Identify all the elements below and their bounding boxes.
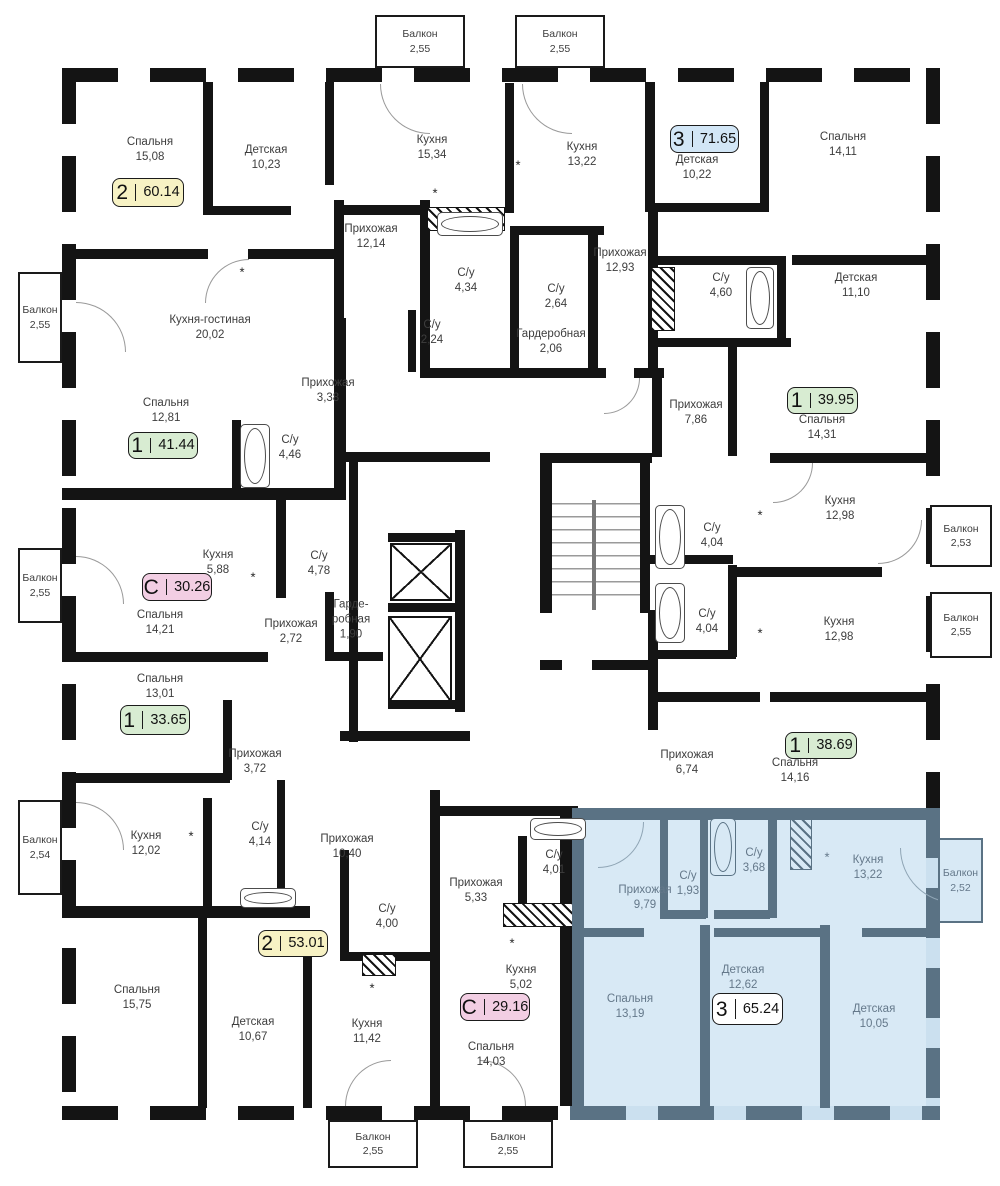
- room-label: Детская11,10: [835, 271, 878, 301]
- room-area: 10,67: [232, 1030, 275, 1045]
- room-area: 20,02: [169, 328, 250, 343]
- apartment-badge[interactable]: 260.14: [112, 178, 184, 207]
- apartment-type: 1: [131, 435, 143, 456]
- room-name: Спальня: [143, 396, 189, 411]
- wall: [777, 256, 786, 344]
- balcony-name: Балкон: [22, 303, 57, 317]
- wall: [648, 650, 736, 659]
- wall: [505, 83, 514, 213]
- room-label: Кухня15,34: [417, 133, 448, 163]
- wall: [203, 82, 213, 214]
- room-area: 5,33: [449, 891, 502, 906]
- room-label: Спальня14,21: [137, 608, 183, 638]
- highlighted-apartment-region[interactable]: [575, 810, 940, 1116]
- balcony: Балкон2,53: [930, 505, 992, 567]
- room-area: 12,98: [824, 630, 855, 645]
- balcony-name: Балкон: [355, 1130, 390, 1144]
- appliance-asterisk-icon: *: [239, 265, 244, 280]
- room-name: Спальня: [820, 130, 866, 145]
- apartment-badge[interactable]: С29.16: [460, 993, 530, 1021]
- room-label: Кухня5,02: [506, 963, 537, 993]
- wall: [340, 452, 490, 462]
- balcony: Балкон2,55: [18, 548, 62, 623]
- door-arc: [773, 463, 813, 503]
- wall: [344, 205, 424, 215]
- room-name: Прихожая: [593, 246, 646, 261]
- balcony: Балкон2,55: [18, 272, 62, 363]
- appliance-asterisk-icon: *: [515, 158, 520, 173]
- wall: [62, 1106, 575, 1120]
- room-area: 12,93: [593, 261, 646, 276]
- room-area: 4,60: [710, 286, 732, 301]
- room-name: С/у: [701, 521, 723, 536]
- badge-divider: [692, 131, 693, 147]
- room-label: Детская10,23: [245, 143, 288, 173]
- wall: [349, 462, 358, 742]
- wall: [540, 453, 652, 463]
- balcony-label: Балкон2,54: [22, 833, 57, 861]
- wall: [560, 808, 572, 1106]
- room-name: Спальня: [137, 608, 183, 623]
- room-name: Гардеробная: [516, 327, 586, 342]
- wall: [325, 82, 334, 185]
- apartment-area: 29.16: [492, 1000, 528, 1015]
- room-name: Кухня: [203, 548, 234, 563]
- room-name: С/у: [696, 607, 718, 622]
- wall-highlighted: [820, 925, 830, 1108]
- room-area: 14,11: [820, 145, 866, 160]
- balcony-area: 2,54: [22, 848, 57, 862]
- room-label: Кухня12,98: [824, 615, 855, 645]
- balcony-name: Балкон: [490, 1130, 525, 1144]
- door-arc: [522, 84, 572, 134]
- wall-highlighted: [700, 925, 710, 1108]
- wall: [408, 310, 416, 372]
- room-area: 4,78: [308, 564, 330, 579]
- apartment-badge[interactable]: 133.65: [120, 705, 190, 735]
- wall: [62, 68, 76, 1120]
- wall: [570, 1106, 940, 1120]
- apartment-type: 1: [123, 710, 135, 731]
- appliance-asterisk-icon: *: [250, 570, 255, 585]
- wall: [770, 453, 928, 463]
- room-name: Кухня: [131, 829, 162, 844]
- balcony-name: Балкон: [943, 611, 978, 625]
- room-label: Прихожая12,14: [344, 222, 397, 252]
- room-name: Кухня-гостиная: [169, 313, 250, 328]
- balcony-label: Балкон2,55: [22, 303, 57, 331]
- bathtub-icon: [437, 212, 503, 236]
- balcony: Балкон2,55: [328, 1120, 418, 1168]
- room-area: 5,02: [506, 978, 537, 993]
- room-area: 3,72: [228, 762, 281, 777]
- balcony-area: 2,55: [490, 1144, 525, 1158]
- appliance-asterisk-icon: *: [432, 186, 437, 201]
- room-area: 12,98: [825, 509, 856, 524]
- room-label: С/у4,78: [308, 549, 330, 579]
- room-name: Прихожая: [449, 876, 502, 891]
- staircase: [552, 503, 640, 607]
- room-area: 12,14: [344, 237, 397, 252]
- room-area: 13,01: [137, 687, 183, 702]
- room-name: С/у: [249, 820, 271, 835]
- room-area: 10,23: [245, 158, 288, 173]
- balcony-label: Балкон2,55: [943, 611, 978, 639]
- room-name: Прихожая: [669, 398, 722, 413]
- balcony-name: Балкон: [22, 571, 57, 585]
- wall: [640, 463, 650, 613]
- wall: [792, 255, 926, 265]
- apartment-type: 2: [116, 182, 128, 203]
- room-name: Кухня: [567, 140, 598, 155]
- wall-highlighted: [660, 820, 668, 918]
- door-arc: [76, 302, 126, 352]
- bathtub-icon: [746, 267, 774, 329]
- wall: [62, 68, 940, 82]
- badge-divider: [142, 711, 143, 729]
- room-label: С/у4,00: [376, 902, 398, 932]
- wall: [325, 592, 334, 658]
- wall: [645, 82, 655, 208]
- room-name: С/у: [279, 433, 301, 448]
- door-arc: [76, 556, 124, 604]
- room-area: 14,31: [799, 428, 845, 443]
- room-area: 4,04: [701, 536, 723, 551]
- room-name: Детская: [676, 153, 719, 168]
- room-name: Детская: [835, 271, 878, 286]
- room-label: Прихожая2,72: [264, 617, 317, 647]
- wall: [388, 533, 458, 542]
- wall: [334, 200, 344, 322]
- room-label: Кухня12,98: [825, 494, 856, 524]
- room-label: Спальня12,81: [143, 396, 189, 426]
- balcony-label: Балкон2,55: [402, 27, 437, 55]
- appliance-asterisk-icon: *: [757, 626, 762, 641]
- wall-hatched: [651, 267, 675, 331]
- room-name: Прихожая: [264, 617, 317, 632]
- room-name: С/у: [308, 549, 330, 564]
- wall: [592, 660, 652, 670]
- room-name: Прихожая: [320, 832, 373, 847]
- room-label: Гардеробная2,06: [516, 327, 586, 357]
- room-label: С/у2,64: [545, 282, 567, 312]
- room-area: 2,64: [545, 297, 567, 312]
- apartment-type: 1: [791, 390, 803, 411]
- apartment-area: 65.24: [743, 1002, 779, 1017]
- room-name: Прихожая: [301, 376, 354, 391]
- bathtub-icon: [655, 583, 685, 643]
- balcony: Балкон2,54: [18, 800, 62, 895]
- wall: [728, 565, 737, 657]
- appliance-asterisk-icon: *: [824, 850, 829, 865]
- wall: [340, 850, 349, 954]
- room-label: Прихожая7,86: [669, 398, 722, 428]
- wall: [645, 203, 769, 212]
- wall-highlighted: [572, 808, 584, 1108]
- room-name: С/у: [376, 902, 398, 917]
- room-area: 4,46: [279, 448, 301, 463]
- apartment-area: 30.26: [174, 580, 210, 595]
- balcony: Балкон2,55: [375, 15, 465, 68]
- room-name: Прихожая: [228, 747, 281, 762]
- room-area: 14,16: [772, 771, 818, 786]
- room-label: Спальня15,08: [127, 135, 173, 165]
- room-label: Спальня14,31: [799, 413, 845, 443]
- wall: [248, 249, 338, 259]
- appliance-asterisk-icon: *: [369, 981, 374, 996]
- apartment-type: 1: [789, 735, 801, 756]
- room-label: Кухня13,22: [567, 140, 598, 170]
- wall: [203, 206, 291, 215]
- wall-highlighted: [572, 808, 940, 820]
- badge-divider: [808, 738, 809, 753]
- badge-divider: [280, 936, 281, 951]
- wall: [334, 318, 346, 494]
- wall-highlighted: [582, 928, 644, 937]
- floor-plan: Спальня15,08Детская10,23Кухня15,34Кухня1…: [0, 0, 1000, 1186]
- room-name: Спальня: [114, 983, 160, 998]
- balcony-area: 2,53: [943, 536, 978, 550]
- bathtub-icon: [655, 505, 685, 569]
- room-area: 4,04: [696, 622, 718, 637]
- apartment-area: 53.01: [288, 936, 324, 951]
- wall: [455, 530, 465, 712]
- room-area: 2,06: [516, 342, 586, 357]
- wall: [518, 836, 527, 908]
- room-label: Прихожая6,74: [660, 748, 713, 778]
- balcony-name: Балкон: [542, 27, 577, 41]
- apartment-badge[interactable]: 365.24: [712, 993, 783, 1025]
- room-label: С/у4,04: [696, 607, 718, 637]
- room-name: Спальня: [468, 1040, 514, 1055]
- apartment-badge[interactable]: 371.65: [670, 125, 739, 153]
- wall: [62, 652, 268, 662]
- room-name: Кухня: [506, 963, 537, 978]
- room-label: Прихожая5,33: [449, 876, 502, 906]
- room-area: 14,21: [137, 623, 183, 638]
- wall: [430, 806, 578, 816]
- wall: [420, 368, 606, 378]
- balcony-name: Балкон: [943, 522, 978, 536]
- apartment-area: 60.14: [143, 185, 179, 200]
- room-label: Прихожая3,72: [228, 747, 281, 777]
- elevator-shaft: [388, 616, 452, 702]
- balcony-label: Балкон2,55: [490, 1130, 525, 1158]
- wall: [388, 603, 458, 612]
- room-label: Детская10,22: [676, 153, 719, 183]
- wall: [760, 82, 769, 208]
- room-name: Детская: [232, 1015, 275, 1030]
- wall: [737, 567, 882, 577]
- apartment-badge[interactable]: 139.95: [787, 387, 858, 414]
- room-area: 15,34: [417, 148, 448, 163]
- balcony-area: 2,55: [22, 318, 57, 332]
- apartment-badge[interactable]: 253.01: [258, 930, 328, 957]
- bathtub-icon: [240, 888, 296, 908]
- wall-hatched: [362, 954, 396, 976]
- appliance-asterisk-icon: *: [757, 508, 762, 523]
- elevator-shaft: [390, 543, 452, 601]
- room-name: С/у: [545, 282, 567, 297]
- apartment-type: 3: [716, 999, 728, 1020]
- balcony-label: Балкон2,55: [22, 571, 57, 599]
- wall: [62, 488, 346, 500]
- balcony-name: Балкон: [943, 866, 978, 880]
- apartment-area: 33.65: [150, 713, 186, 728]
- room-label: Спальня15,75: [114, 983, 160, 1013]
- room-label: Кухня12,02: [131, 829, 162, 859]
- staircase-rail: [592, 500, 596, 610]
- wall: [651, 338, 791, 347]
- badge-divider: [735, 999, 736, 1019]
- room-label: С/у4,46: [279, 433, 301, 463]
- wall-highlighted: [862, 928, 926, 937]
- apartment-area: 39.95: [818, 393, 854, 408]
- room-area: 10,22: [676, 168, 719, 183]
- door-arc: [480, 1060, 526, 1106]
- room-name: Спальня: [127, 135, 173, 150]
- room-area: 6,74: [660, 763, 713, 778]
- room-name: Кухня: [825, 494, 856, 509]
- wall-highlighted: [714, 910, 770, 919]
- room-area: 7,86: [669, 413, 722, 428]
- door-arc: [380, 84, 430, 134]
- wall: [652, 372, 662, 457]
- room-area: 2,72: [264, 632, 317, 647]
- apartment-type: С: [462, 997, 477, 1018]
- room-name: С/у: [455, 266, 477, 281]
- wall: [926, 68, 940, 813]
- room-area: 3,38: [301, 391, 354, 406]
- door-arc: [76, 802, 124, 850]
- room-label: С/у4,14: [249, 820, 271, 850]
- room-label: Детская10,67: [232, 1015, 275, 1045]
- apartment-badge[interactable]: 141.44: [128, 432, 198, 459]
- balcony-area: 2,55: [943, 625, 978, 639]
- room-label: Кухня11,42: [352, 1017, 383, 1047]
- balcony-area: 2,55: [542, 42, 577, 56]
- wall: [303, 952, 312, 1108]
- room-area: 12,81: [143, 411, 189, 426]
- wall: [540, 463, 552, 613]
- badge-divider: [135, 184, 136, 201]
- balcony-area: 2,52: [943, 881, 978, 895]
- badge-divider: [150, 438, 151, 453]
- room-label: Кухня-гостиная20,02: [169, 313, 250, 343]
- wall: [651, 256, 783, 265]
- wall-highlighted: [660, 910, 706, 919]
- room-label: С/у4,04: [701, 521, 723, 551]
- balcony-label: Балкон2,53: [943, 522, 978, 550]
- balcony-name: Балкон: [22, 833, 57, 847]
- room-label: Прихожая12,93: [593, 246, 646, 276]
- wall: [62, 773, 230, 783]
- room-label: С/у4,60: [710, 271, 732, 301]
- badge-divider: [810, 393, 811, 408]
- apartment-badge[interactable]: 138.69: [785, 732, 857, 759]
- room-label: Прихожая3,38: [301, 376, 354, 406]
- room-name: Кухня: [352, 1017, 383, 1032]
- wall: [62, 249, 208, 259]
- room-label: Спальня14,11: [820, 130, 866, 160]
- badge-divider: [166, 579, 167, 595]
- badge-divider: [484, 999, 485, 1015]
- balcony-area: 2,55: [402, 42, 437, 56]
- wall: [276, 500, 286, 598]
- room-area: 4,34: [455, 281, 477, 296]
- room-name: Спальня: [799, 413, 845, 428]
- wall: [770, 692, 928, 702]
- room-name: Детская: [245, 143, 288, 158]
- door-arc: [604, 378, 640, 414]
- wall: [510, 232, 519, 375]
- balcony: Балкон2,55: [515, 15, 605, 68]
- balcony-name: Балкон: [402, 27, 437, 41]
- balcony: Балкон2,55: [463, 1120, 553, 1168]
- room-area: 4,14: [249, 835, 271, 850]
- balcony-area: 2,55: [355, 1144, 390, 1158]
- wall: [540, 660, 562, 670]
- room-area: 15,08: [127, 150, 173, 165]
- bathtub-icon: [240, 424, 270, 488]
- apartment-area: 71.65: [700, 132, 736, 147]
- balcony: Балкон2,52: [938, 838, 983, 923]
- wall: [430, 790, 440, 1108]
- room-label: Спальня14,16: [772, 756, 818, 786]
- room-area: 12,02: [131, 844, 162, 859]
- room-label: С/у4,34: [455, 266, 477, 296]
- wall: [728, 340, 737, 456]
- wall: [340, 731, 470, 741]
- door-arc: [878, 520, 922, 564]
- appliance-asterisk-icon: *: [188, 829, 193, 844]
- apartment-badge[interactable]: С30.26: [142, 573, 212, 601]
- wall-highlighted: [700, 820, 708, 918]
- room-name: Кухня: [824, 615, 855, 630]
- wall: [198, 918, 207, 1108]
- apartment-type: 3: [673, 129, 685, 150]
- wall: [648, 692, 760, 702]
- wall: [223, 700, 232, 780]
- room-area: 11,42: [352, 1032, 383, 1047]
- apartment-area: 41.44: [158, 438, 194, 453]
- apartment-type: 2: [261, 933, 273, 954]
- wall: [588, 232, 598, 375]
- wall-highlighted: [714, 928, 820, 937]
- wall-hatched: [503, 903, 573, 927]
- balcony-area: 2,55: [22, 586, 57, 600]
- wall-hatched: [790, 813, 812, 870]
- room-name: Спальня: [137, 672, 183, 687]
- room-label: Спальня13,01: [137, 672, 183, 702]
- room-name: С/у: [710, 271, 732, 286]
- balcony: Балкон2,55: [930, 592, 992, 658]
- balcony-label: Балкон2,52: [943, 866, 978, 894]
- apartment-type: С: [144, 577, 159, 598]
- wall: [203, 798, 212, 908]
- room-name: Кухня: [417, 133, 448, 148]
- room-name: Прихожая: [344, 222, 397, 237]
- room-area: 13,22: [567, 155, 598, 170]
- wall-highlighted: [768, 820, 777, 918]
- room-area: 4,00: [376, 917, 398, 932]
- bathtub-icon: [530, 818, 586, 840]
- room-name: Прихожая: [660, 748, 713, 763]
- bathtub-icon: [710, 818, 736, 876]
- apartment-area: 38.69: [816, 738, 852, 753]
- balcony-label: Балкон2,55: [355, 1130, 390, 1158]
- room-area: 15,75: [114, 998, 160, 1013]
